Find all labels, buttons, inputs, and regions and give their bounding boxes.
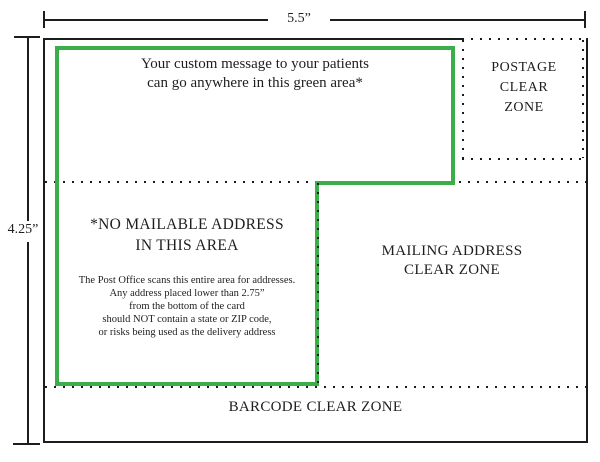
no-mailable-body-line5: or risks being used as the delivery addr… — [59, 326, 315, 339]
card-border-left — [43, 38, 45, 443]
mailing-address-zone-label: MAILING ADDRESS CLEAR ZONE — [319, 242, 585, 280]
width-dimension-tick-left — [43, 11, 45, 28]
custom-message-line1: Your custom message to your patients — [55, 55, 455, 74]
postage-zone-label-line3: ZONE — [462, 98, 586, 118]
mailing-zone-label-line2: CLEAR ZONE — [319, 261, 585, 280]
barcode-zone-dotted-line — [45, 386, 586, 388]
no-mailable-address-heading: *NO MAILABLE ADDRESS IN THIS AREA — [59, 214, 315, 256]
postage-zone-label: POSTAGE CLEAR ZONE — [462, 58, 586, 118]
postcard-template-diagram: 5.5” 4.25” Your custom message to your — [0, 0, 600, 462]
width-dimension-line-left — [43, 19, 268, 21]
postage-zone-label-line2: CLEAR — [462, 78, 586, 98]
no-mailable-heading-line2: IN THIS AREA — [59, 235, 315, 256]
height-dimension-label: 4.25” — [0, 222, 46, 238]
card-border-bottom — [43, 441, 588, 443]
width-dimension-line-right — [330, 19, 585, 21]
mailing-zone-label-line1: MAILING ADDRESS — [319, 242, 585, 261]
no-mailable-body-line1: The Post Office scans this entire area f… — [59, 274, 315, 287]
no-mailable-body-line2: Any address placed lower than 2.75” — [59, 287, 315, 300]
no-mailable-body-line3: from the bottom of the card — [59, 300, 315, 313]
green-area-border-top — [55, 46, 455, 50]
no-mailable-address-body: The Post Office scans this entire area f… — [59, 274, 315, 339]
postage-zone-border-top — [462, 38, 586, 40]
width-dimension-tick-right — [584, 11, 586, 28]
height-dimension-line-bottom — [27, 242, 29, 445]
barcode-zone-label: BARCODE CLEAR ZONE — [45, 399, 586, 416]
card-border-right — [586, 38, 588, 443]
postage-zone-label-line1: POSTAGE — [462, 58, 586, 78]
height-dimension-tick-top — [14, 36, 40, 38]
postage-zone-border-bottom — [462, 158, 586, 160]
no-mailable-body-line4: should NOT contain a state or ZIP code, — [59, 313, 315, 326]
height-dimension-tick-bottom — [13, 443, 40, 445]
height-dimension-line-top — [27, 37, 29, 221]
card-border-top — [43, 38, 462, 40]
postcard-outline: Your custom message to your patients can… — [43, 38, 588, 443]
mailing-zone-dotted-left-edge — [317, 183, 319, 386]
custom-message-line2: can go anywhere in this green area* — [55, 74, 455, 93]
custom-message-text: Your custom message to your patients can… — [55, 55, 455, 93]
no-mailable-heading-line1: *NO MAILABLE ADDRESS — [59, 214, 315, 235]
width-dimension-label: 5.5” — [269, 11, 329, 27]
green-area-border-step — [315, 181, 455, 185]
